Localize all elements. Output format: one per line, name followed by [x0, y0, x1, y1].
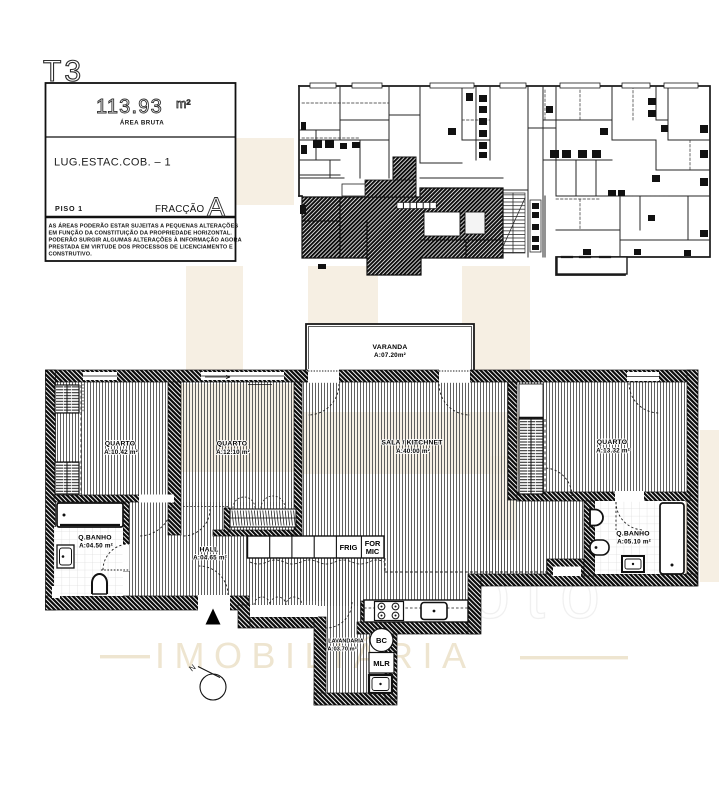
svg-text:A:03.70 m²: A:03.70 m²	[327, 646, 356, 653]
svg-text:FRIG: FRIG	[340, 543, 358, 552]
svg-text:PISO 1: PISO 1	[55, 204, 83, 213]
svg-text:A:13.32 m²: A:13.32 m²	[596, 448, 630, 455]
svg-text:Q.BANHO: Q.BANHO	[616, 531, 650, 538]
svg-text:Q.BANHO: Q.BANHO	[78, 535, 112, 542]
svg-text:113.93: 113.93	[96, 96, 163, 118]
svg-text:A:40.00 m²: A:40.00 m²	[396, 448, 430, 455]
svg-text:QUARTO: QUARTO	[217, 441, 248, 448]
svg-text:BC: BC	[376, 636, 387, 645]
svg-text:FRACÇÃO: FRACÇÃO	[155, 204, 204, 215]
svg-text:VARANDA: VARANDA	[373, 344, 408, 351]
svg-text:MIC: MIC	[366, 547, 380, 556]
svg-text:ÁREA BRUTA: ÁREA BRUTA	[120, 120, 164, 127]
svg-text:A:04.50 m²: A:04.50 m²	[79, 543, 113, 550]
svg-text:A: A	[207, 192, 225, 222]
svg-text:PRESTADA EM VIRTUDE DOS PROCES: PRESTADA EM VIRTUDE DOS PROCESSOS DE LIC…	[49, 245, 233, 251]
svg-text:LUG.ESTAC.COB. – 1: LUG.ESTAC.COB. – 1	[54, 157, 171, 169]
svg-text:m²: m²	[176, 97, 191, 111]
svg-text:SALA / KITCHNET: SALA / KITCHNET	[381, 440, 443, 447]
svg-text:A:05.10 m²: A:05.10 m²	[617, 539, 651, 546]
svg-text:AS ÁREAS PODERÃO ESTAR SUJEITA: AS ÁREAS PODERÃO ESTAR SUJEITAS A PEQUEN…	[49, 223, 239, 230]
svg-text:PODERÃO SURGIR ALGUMAS ALTERAÇ: PODERÃO SURGIR ALGUMAS ALTERAÇÕES À INFO…	[49, 237, 242, 244]
svg-text:EM FUNÇÃO DA CONSTITUIÇÃO DA P: EM FUNÇÃO DA CONSTITUIÇÃO DA PROPRIEDADE…	[49, 230, 233, 237]
svg-text:A:07.20m²: A:07.20m²	[374, 352, 406, 359]
svg-text:LAVANDARIA: LAVANDARIA	[328, 639, 364, 645]
svg-text:HALL: HALL	[200, 547, 219, 554]
svg-text:A:04.65 m²: A:04.65 m²	[193, 555, 227, 562]
svg-text:QUARTO: QUARTO	[105, 441, 136, 448]
svg-text:A:12.10 m²: A:12.10 m²	[216, 449, 250, 456]
svg-text:QUARTO: QUARTO	[597, 439, 628, 446]
svg-text:MLR: MLR	[373, 659, 390, 668]
svg-text:A:10.42 m²: A:10.42 m²	[104, 449, 138, 456]
svg-text:CONSTRUTIVO.: CONSTRUTIVO.	[49, 252, 93, 258]
